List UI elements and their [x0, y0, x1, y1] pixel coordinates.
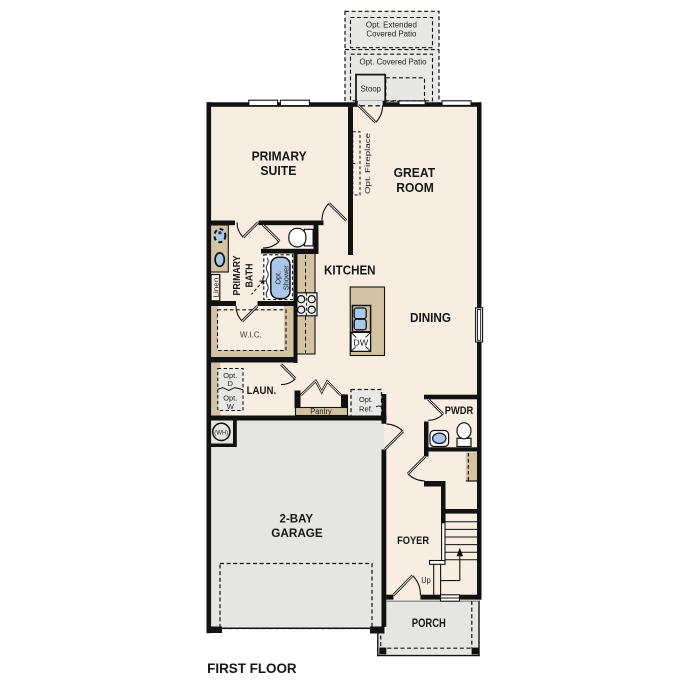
- svg-text:PRIMARY: PRIMARY: [231, 256, 243, 296]
- svg-text:Stoop: Stoop: [361, 83, 382, 93]
- svg-text:PORCH: PORCH: [412, 616, 446, 630]
- svg-text:KITCHEN: KITCHEN: [324, 262, 376, 277]
- svg-text:Opt. Fireplace: Opt. Fireplace: [363, 133, 372, 194]
- svg-text:2-BAY: 2-BAY: [280, 511, 314, 525]
- svg-text:Linen: Linen: [211, 278, 220, 298]
- svg-text:Ref.: Ref.: [359, 405, 373, 414]
- svg-text:FOYER: FOYER: [397, 535, 429, 547]
- svg-text:SUITE: SUITE: [260, 163, 296, 178]
- svg-text:Covered Patio: Covered Patio: [366, 28, 416, 38]
- svg-text:D: D: [228, 379, 234, 388]
- svg-text:LAUN.: LAUN.: [247, 385, 277, 397]
- svg-text:W.I.C.: W.I.C.: [240, 330, 262, 340]
- svg-text:W: W: [227, 402, 235, 411]
- svg-text:GARAGE: GARAGE: [271, 526, 323, 540]
- svg-text:Opt. Covered Patio: Opt. Covered Patio: [360, 57, 427, 67]
- svg-text:Up: Up: [421, 576, 431, 585]
- svg-text:PRIMARY: PRIMARY: [252, 148, 307, 163]
- svg-text:(WH): (WH): [214, 429, 228, 436]
- svg-text:Pantry: Pantry: [310, 407, 332, 416]
- svg-text:ROOM: ROOM: [396, 180, 434, 195]
- svg-text:DW: DW: [353, 339, 369, 348]
- svg-text:Opt.: Opt.: [359, 395, 373, 404]
- svg-text:DINING: DINING: [410, 310, 451, 325]
- svg-text:PWDR: PWDR: [445, 405, 474, 417]
- svg-text:Shower: Shower: [282, 265, 291, 291]
- svg-text:GREAT: GREAT: [394, 165, 436, 180]
- svg-text:FIRST FLOOR: FIRST FLOOR: [207, 661, 297, 676]
- svg-text:BATH: BATH: [244, 264, 256, 288]
